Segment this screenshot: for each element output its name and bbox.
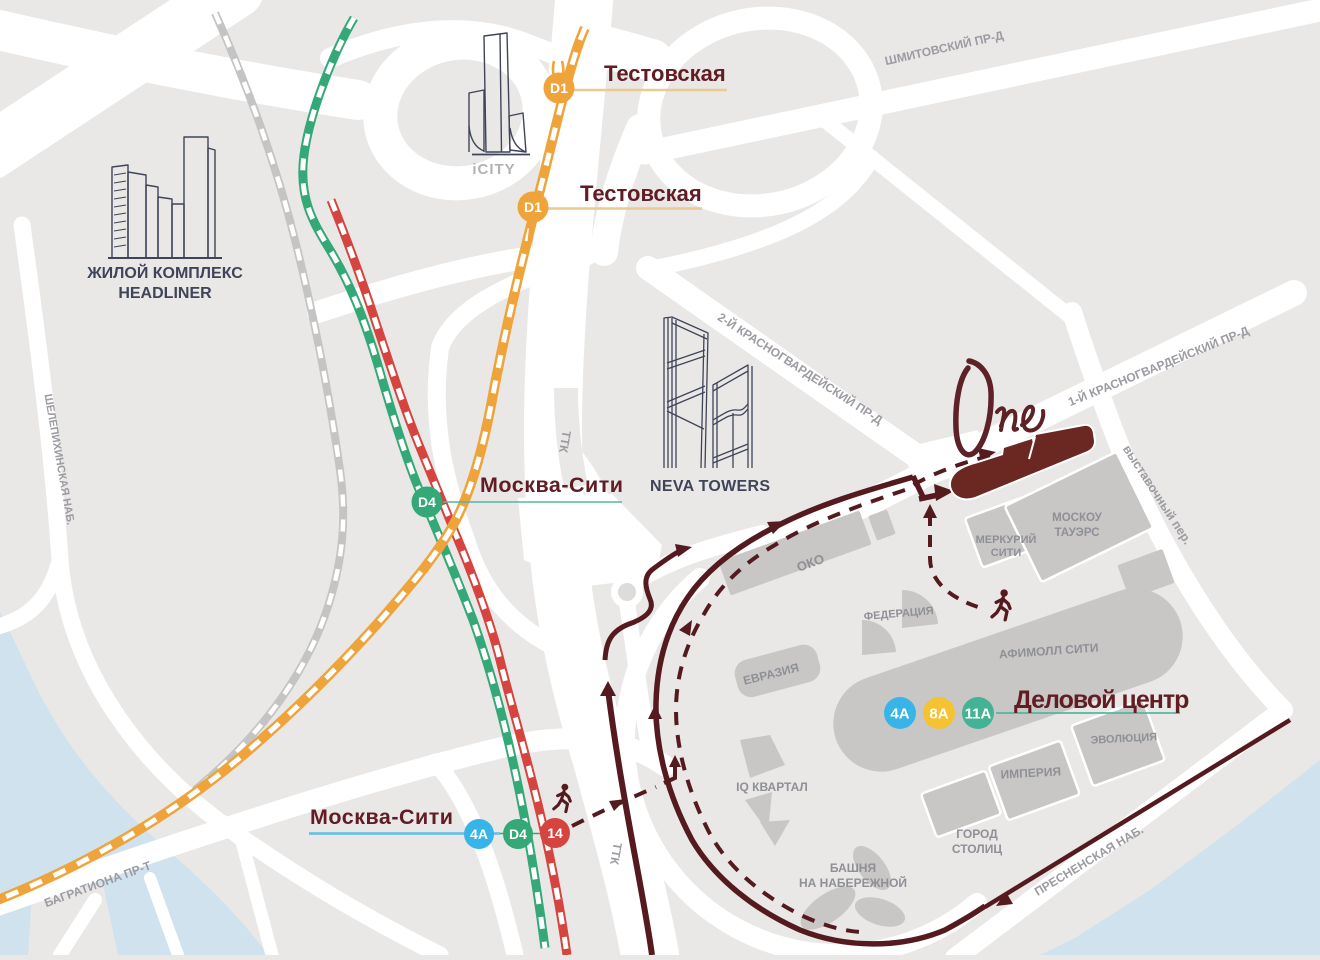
svg-text:D1: D1 — [524, 199, 542, 215]
svg-text:D1: D1 — [550, 80, 568, 96]
svg-text:NEVA TOWERS: NEVA TOWERS — [650, 478, 770, 495]
svg-text:БАШНЯ: БАШНЯ — [830, 861, 876, 875]
svg-text:СИТИ: СИТИ — [991, 547, 1022, 559]
svg-text:D4: D4 — [509, 826, 527, 842]
svg-text:4А: 4А — [470, 826, 488, 842]
svg-text:СТОЛИЦ: СТОЛИЦ — [952, 842, 1002, 856]
svg-text:Деловой центр: Деловой центр — [1014, 686, 1189, 714]
svg-text:iCITY: iCITY — [472, 161, 515, 178]
svg-text:ГОРОД: ГОРОД — [956, 827, 998, 841]
svg-text:4А: 4А — [890, 706, 909, 723]
svg-text:ТАУЭРС: ТАУЭРС — [1054, 527, 1099, 539]
svg-text:Москва-Сити: Москва-Сити — [480, 473, 624, 497]
svg-text:IQ КВАРТАЛ: IQ КВАРТАЛ — [736, 780, 808, 794]
svg-text:D4: D4 — [418, 494, 436, 510]
svg-text:Тестовская: Тестовская — [580, 181, 702, 206]
svg-text:ЖИЛОЙ КОМПЛЕКС: ЖИЛОЙ КОМПЛЕКС — [86, 263, 243, 282]
svg-text:8А: 8А — [929, 706, 948, 723]
svg-text:НА НАБЕРЕЖНОЙ: НА НАБЕРЕЖНОЙ — [799, 875, 907, 890]
svg-text:14: 14 — [547, 825, 563, 841]
svg-text:МЕРКУРИЙ: МЕРКУРИЙ — [976, 533, 1037, 546]
svg-text:11А: 11А — [965, 706, 992, 723]
svg-text:МОСКОУ: МОСКОУ — [1052, 512, 1103, 524]
svg-text:HEADLINER: HEADLINER — [118, 285, 212, 302]
svg-text:Тестовская: Тестовская — [604, 61, 726, 86]
svg-text:Москва-Сити: Москва-Сити — [310, 805, 454, 829]
